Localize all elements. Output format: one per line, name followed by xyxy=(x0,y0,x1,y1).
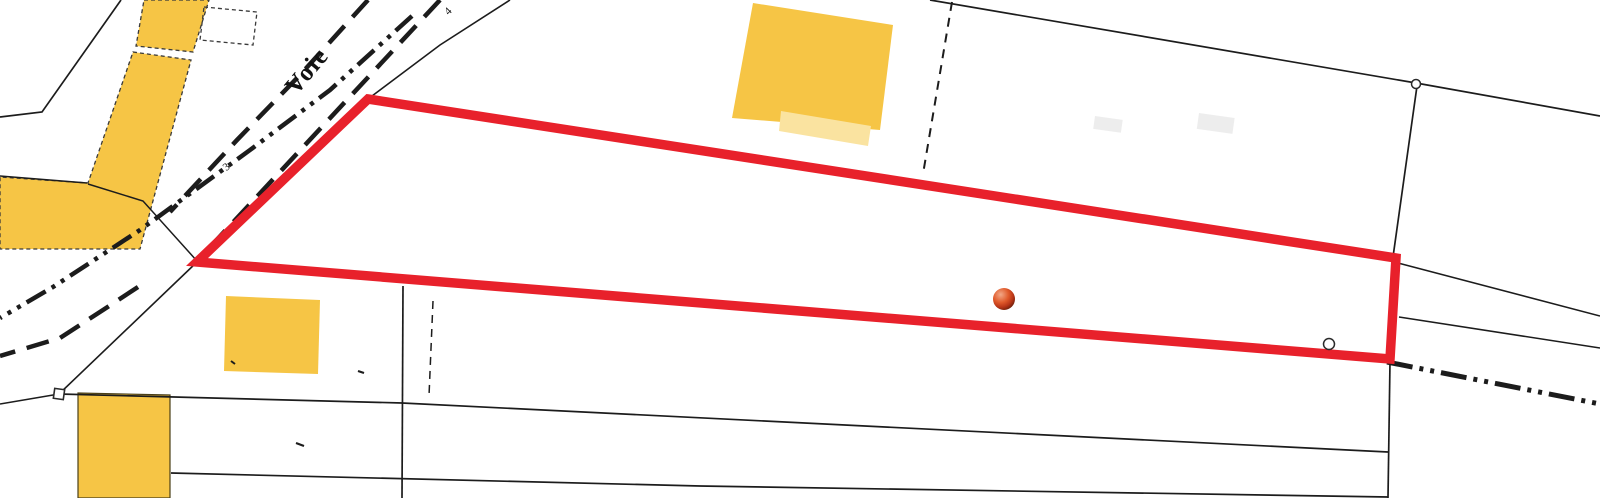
building-north-center xyxy=(732,3,893,130)
location-dot[interactable] xyxy=(993,288,1015,310)
boundary-vertical-mid xyxy=(402,286,403,498)
corner-circle-marker-north xyxy=(1412,80,1421,89)
building-mid-small xyxy=(224,296,320,374)
corner-square-marker xyxy=(53,388,64,399)
map-viewport: Voie43 xyxy=(0,0,1600,498)
building-south-west xyxy=(78,393,170,498)
map-canvas[interactable]: Voie43 xyxy=(0,0,1600,498)
corner-circle-marker-south xyxy=(1324,339,1335,350)
